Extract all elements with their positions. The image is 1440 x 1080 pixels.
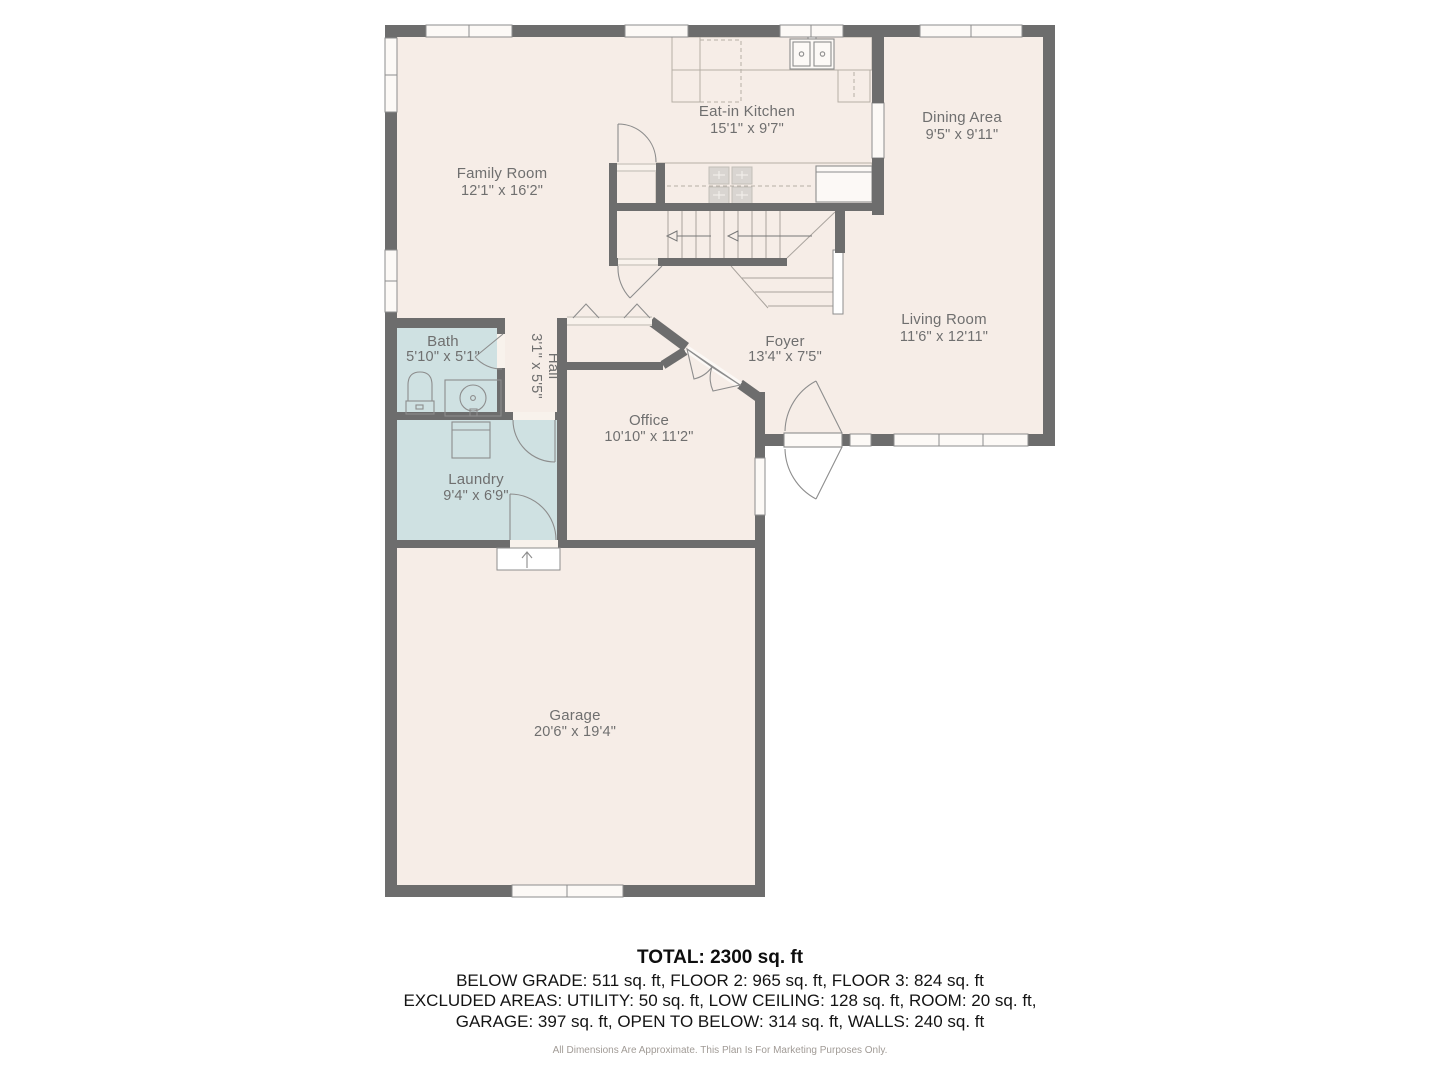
room-dims-foyer: 13'4" x 7'5"	[748, 349, 822, 365]
stair-railing	[833, 250, 843, 314]
garage-step	[497, 548, 560, 570]
summary-line-2: EXCLUDED AREAS: UTILITY: 50 sq. ft, LOW …	[404, 991, 1037, 1010]
summary-line-1: BELOW GRADE: 511 sq. ft, FLOOR 2: 965 sq…	[456, 971, 984, 990]
room-dims-garage: 20'6" x 19'4"	[534, 724, 616, 740]
room-label-hall: Hall	[545, 353, 562, 380]
floor-areas	[385, 25, 1055, 897]
window	[755, 458, 765, 515]
room-label-bath: Bath	[427, 333, 459, 350]
pass-through-window	[872, 103, 884, 158]
room-dims-office: 10'10" x 11'2"	[604, 429, 693, 445]
room-label-garage: Garage	[549, 707, 600, 724]
window	[625, 25, 688, 37]
summary-line-3: GARAGE: 397 sq. ft, OPEN TO BELOW: 314 s…	[456, 1012, 985, 1031]
room-dims-bath: 5'10" x 5'1"	[406, 349, 480, 365]
room-dims-kitchen: 15'1" x 9'7"	[710, 121, 784, 137]
room-label-foyer: Foyer	[765, 333, 804, 350]
room-dims-living: 11'6" x 12'11"	[900, 329, 988, 345]
room-label-office: Office	[629, 412, 669, 429]
room-label-dining: Dining Area	[922, 109, 1002, 126]
room-label-kitchen: Eat-in Kitchen	[699, 103, 795, 120]
room-label-family: Family Room	[457, 165, 548, 182]
room-dims-laundry: 9'4" x 6'9"	[443, 488, 509, 504]
room-dims-hall: 3'1" x 5'5"	[528, 333, 544, 399]
total-area-text: TOTAL: 2300 sq. ft	[637, 947, 804, 968]
room-label-laundry: Laundry	[448, 471, 504, 488]
floor-plan-canvas: Family Room 12'1" x 16'2" Eat-in Kitchen…	[0, 0, 1440, 1080]
dishwasher-icon	[816, 166, 872, 202]
room-dims-dining: 9'5" x 9'11"	[926, 127, 999, 143]
room-dims-family: 12'1" x 16'2"	[461, 183, 543, 199]
window	[894, 434, 1028, 446]
room-label-living: Living Room	[901, 311, 987, 328]
area-summary: TOTAL: 2300 sq. ft BELOW GRADE: 511 sq. …	[404, 947, 1037, 1056]
disclaimer-text: All Dimensions Are Approximate. This Pla…	[553, 1045, 888, 1056]
window	[850, 434, 871, 446]
